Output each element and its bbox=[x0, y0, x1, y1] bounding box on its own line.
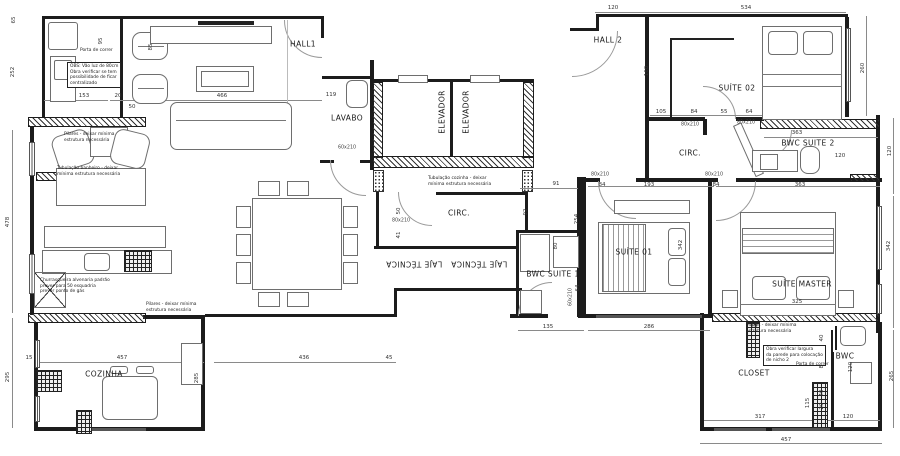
dimension-label: 363 bbox=[795, 182, 806, 188]
construction-note: Porta de correr bbox=[80, 48, 113, 54]
dimension-line bbox=[518, 330, 584, 331]
dimension-label: 45 bbox=[386, 355, 393, 361]
dimension-label: 20 bbox=[819, 403, 825, 410]
dimension-label: 91 bbox=[553, 181, 560, 187]
partition-line bbox=[287, 20, 288, 115]
pillow bbox=[668, 258, 686, 286]
dimension-label: 120 bbox=[608, 5, 619, 11]
window bbox=[846, 28, 851, 102]
lavabo-sink bbox=[346, 80, 368, 108]
wall bbox=[322, 76, 374, 79]
door-size-label: 80x210 bbox=[681, 123, 699, 128]
construction-note: Porta de correr bbox=[796, 362, 829, 368]
wardrobe-line bbox=[670, 38, 672, 117]
door-size-label: 80x210 bbox=[705, 173, 723, 178]
dining-chair bbox=[287, 181, 309, 196]
dining-chair bbox=[343, 262, 358, 284]
dimension-label: 457 bbox=[781, 437, 792, 443]
dining-table bbox=[252, 198, 342, 290]
shower bbox=[520, 234, 550, 272]
room-label-hall1: HALL1 bbox=[290, 40, 316, 49]
nightstand bbox=[722, 290, 738, 308]
dimension-label: 342 bbox=[886, 241, 892, 252]
wall bbox=[708, 182, 712, 318]
dimension-line bbox=[595, 12, 646, 13]
door-size-label: 60x210 bbox=[569, 288, 574, 306]
blanket bbox=[742, 228, 834, 254]
dimension-label: 84 bbox=[713, 182, 720, 188]
dimension-label: 65 bbox=[11, 17, 17, 24]
wall bbox=[645, 14, 848, 17]
dimension-label: 153 bbox=[79, 93, 90, 99]
armchair bbox=[132, 74, 168, 104]
dining-chair bbox=[236, 206, 251, 228]
toilet bbox=[840, 326, 866, 346]
wardrobe-suite01 bbox=[614, 200, 690, 214]
wall bbox=[374, 246, 519, 249]
cooktop bbox=[124, 250, 152, 272]
wall bbox=[516, 230, 519, 317]
dimension-label: 295 bbox=[5, 372, 11, 383]
hatched-wall bbox=[28, 117, 146, 127]
dimension-label: 40 bbox=[819, 390, 825, 397]
stool bbox=[136, 366, 154, 374]
dimension-line bbox=[12, 130, 13, 313]
dimension-label: 92 bbox=[523, 209, 529, 216]
wall bbox=[570, 28, 598, 31]
dimension-label: 317 bbox=[755, 414, 766, 420]
dimension-label: 534 bbox=[741, 5, 752, 11]
window bbox=[92, 428, 146, 431]
dining-chair bbox=[343, 234, 358, 256]
room-label-bwc: BWC bbox=[836, 352, 855, 361]
dimension-label: 285 bbox=[194, 373, 200, 384]
dimension-label: 105 bbox=[656, 109, 667, 115]
door-size-label: 80x210 bbox=[591, 173, 609, 178]
construction-note: Pilares - deixar mínima estrutura necess… bbox=[64, 132, 114, 143]
wall bbox=[831, 330, 833, 354]
hatched-wall bbox=[523, 82, 534, 158]
construction-note: Pilares - deixar mínima estrutura necess… bbox=[746, 323, 796, 334]
construction-note: Tubulação banheiro - deixar mínima estru… bbox=[57, 166, 120, 177]
wall bbox=[143, 315, 205, 319]
dimension-line bbox=[700, 443, 882, 444]
dining-chair bbox=[236, 262, 251, 284]
wall bbox=[450, 82, 453, 156]
dimension-label: 120 bbox=[835, 153, 846, 159]
room-label-circ: CIRC. bbox=[448, 209, 470, 218]
bathroom-counter bbox=[48, 22, 78, 50]
window bbox=[35, 340, 40, 368]
hatched-wall bbox=[372, 82, 383, 158]
construction-note: OBS: Vão luz de 80cm Obra verificar se t… bbox=[67, 62, 121, 88]
pillow bbox=[768, 31, 798, 55]
bwc1-cabinet bbox=[520, 290, 542, 314]
dimension-label: 85 bbox=[148, 44, 154, 51]
dimension-line bbox=[12, 318, 13, 428]
construction-note: Tubulação cozinha - deixar mínima estrut… bbox=[428, 176, 491, 187]
wall bbox=[596, 14, 648, 17]
dimension-label: 20 bbox=[115, 93, 122, 99]
dimension-label: 286 bbox=[644, 324, 655, 330]
wall bbox=[831, 352, 834, 430]
furniture-line bbox=[138, 88, 164, 89]
piping-column bbox=[373, 170, 384, 192]
dimension-label: 120 bbox=[848, 362, 854, 373]
window bbox=[29, 142, 35, 176]
dimension-label: 325 bbox=[792, 299, 803, 305]
dining-chair bbox=[343, 206, 358, 228]
kitchen-shelf bbox=[36, 370, 62, 392]
wall bbox=[394, 288, 522, 291]
room-label-laje-t-cnica: LAJE TÉCNICA bbox=[451, 260, 507, 269]
door-size-label: 80x210 bbox=[392, 219, 410, 224]
lounge-chair bbox=[108, 127, 152, 171]
wall bbox=[878, 322, 882, 431]
dimension-label: 115 bbox=[805, 398, 811, 409]
dimension-label: 457 bbox=[117, 355, 128, 361]
wall bbox=[42, 16, 45, 118]
window bbox=[596, 315, 702, 318]
dimension-label: 84 bbox=[599, 182, 606, 188]
dimension-label: 55 bbox=[721, 109, 728, 115]
toilet bbox=[800, 146, 820, 174]
wall bbox=[645, 117, 649, 178]
dimension-label: 193 bbox=[644, 182, 655, 188]
nightstand bbox=[838, 290, 854, 308]
wall bbox=[372, 79, 534, 82]
dimension-label: 436 bbox=[299, 355, 310, 361]
dimension-label: 80 bbox=[553, 243, 559, 250]
dimension-line bbox=[40, 362, 204, 363]
kitchen-shelf bbox=[76, 410, 92, 434]
kitchen-sink bbox=[84, 253, 110, 271]
dining-chair bbox=[258, 181, 280, 196]
sideboard bbox=[150, 26, 272, 44]
room-label-circ: CIRC. bbox=[679, 149, 701, 158]
furniture-line bbox=[176, 120, 286, 121]
construction-note: Churrasqueira alvenaria padrão prever pa… bbox=[40, 278, 110, 295]
room-label-bwc-suite-1: BWC SUITE 1 bbox=[526, 270, 579, 279]
wall bbox=[42, 16, 324, 19]
dimension-label: 64 bbox=[575, 285, 581, 292]
hatched-wall bbox=[850, 174, 880, 182]
furniture-line bbox=[740, 304, 836, 305]
blanket bbox=[602, 224, 646, 292]
dimension-label: 466 bbox=[217, 93, 228, 99]
dimension-line bbox=[704, 420, 880, 421]
kitchen-island-counter bbox=[44, 226, 166, 248]
construction-note: Pilares - deixar mínima estrutura necess… bbox=[146, 302, 196, 313]
dimension-label: 120 bbox=[843, 414, 854, 420]
coffee-table-inner bbox=[201, 71, 249, 87]
bwc1-fixture bbox=[553, 236, 579, 268]
floor-plan-canvas: HALL1HALL 2LAVABOELEVADORELEVADORSUÍTE 0… bbox=[0, 0, 900, 456]
room-label-cozinha: COZINHA bbox=[85, 370, 123, 379]
room-label-lavabo: LAVABO bbox=[331, 114, 363, 123]
dimension-label: 64 bbox=[746, 109, 753, 115]
dimension-label: 40 bbox=[819, 335, 825, 342]
room-label-bwc-suite-2: BWC SUITE 2 bbox=[781, 139, 834, 148]
dimension-label: 50 bbox=[396, 208, 402, 215]
dimension-line bbox=[520, 188, 578, 189]
wall bbox=[436, 192, 526, 195]
dimension-line bbox=[866, 16, 867, 116]
dimension-label: 160 bbox=[644, 66, 650, 77]
room-label-hall-2: HALL 2 bbox=[594, 36, 623, 45]
room-label-su-te-02: SUÍTE 02 bbox=[719, 84, 756, 93]
dimension-label: 363 bbox=[792, 130, 803, 136]
window bbox=[772, 428, 830, 431]
dimension-label: 260 bbox=[860, 63, 866, 74]
door-size-label: 80x210 bbox=[737, 121, 755, 126]
hatched-wall bbox=[760, 119, 880, 129]
kitchen-table bbox=[102, 376, 158, 420]
dimension-line bbox=[646, 12, 846, 13]
wardrobe-line bbox=[670, 38, 734, 40]
room-label-elevador: ELEVADOR bbox=[438, 90, 447, 134]
dimension-label: 265 bbox=[889, 371, 895, 382]
dimension-label: 50 bbox=[129, 104, 136, 110]
dimension-label: 342 bbox=[678, 240, 684, 251]
room-label-su-te-01: SUÍTE 01 bbox=[616, 248, 653, 257]
dining-chair bbox=[258, 292, 280, 307]
bwc2-sink bbox=[760, 154, 778, 170]
dimension-line bbox=[588, 330, 710, 331]
room-label-closet: CLOSET bbox=[738, 369, 770, 378]
room-label-elevador: ELEVADOR bbox=[462, 90, 471, 134]
wall bbox=[394, 290, 397, 317]
dimension-label: 15 bbox=[26, 355, 33, 361]
sofa bbox=[170, 102, 292, 150]
wall bbox=[516, 230, 580, 233]
dimension-label: 135 bbox=[543, 324, 554, 330]
hatched-wall bbox=[28, 313, 146, 323]
window bbox=[877, 284, 882, 314]
dimension-label: 84 bbox=[691, 109, 698, 115]
dimension-label: 119 bbox=[326, 92, 337, 98]
dimension-line bbox=[893, 196, 894, 328]
window bbox=[877, 206, 882, 270]
pillow bbox=[803, 31, 833, 55]
dimension-label: 41 bbox=[396, 232, 402, 239]
dining-chair bbox=[236, 234, 251, 256]
dimension-line bbox=[650, 115, 764, 116]
wall bbox=[645, 117, 705, 121]
hatched-wall bbox=[372, 156, 534, 168]
dimension-line bbox=[893, 118, 894, 194]
dimension-line bbox=[214, 362, 396, 363]
wall bbox=[703, 119, 707, 135]
door-size-label: 60x210 bbox=[338, 146, 356, 151]
dimension-label: 95 bbox=[98, 38, 104, 45]
dining-chair bbox=[287, 292, 309, 307]
elevator-door bbox=[398, 75, 428, 83]
dimension-label: 252 bbox=[10, 67, 16, 78]
dimension-label: 254 bbox=[574, 214, 580, 225]
furniture-line bbox=[762, 74, 842, 75]
elevator-door bbox=[470, 75, 500, 83]
dimension-label: 120 bbox=[887, 146, 893, 157]
window bbox=[714, 428, 766, 431]
room-label-su-te-master: SUÍTE MASTER bbox=[772, 280, 832, 289]
dimension-label: 478 bbox=[5, 217, 11, 228]
furniture-line bbox=[762, 86, 842, 87]
wall bbox=[205, 314, 397, 317]
wall bbox=[376, 192, 379, 246]
window bbox=[35, 396, 40, 422]
wall bbox=[835, 326, 837, 350]
tv bbox=[198, 21, 254, 25]
room-label-laje-t-cnica: LAJE TÉCNICA bbox=[386, 260, 442, 269]
